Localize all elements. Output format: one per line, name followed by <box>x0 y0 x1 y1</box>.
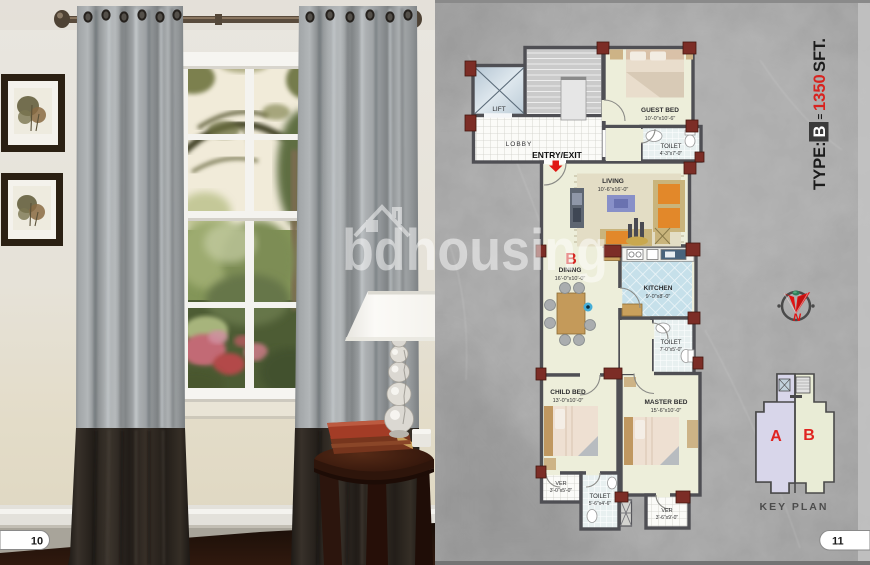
svg-text:bdhousing: bdhousing <box>342 218 608 283</box>
svg-text:10: 10 <box>31 536 43 548</box>
